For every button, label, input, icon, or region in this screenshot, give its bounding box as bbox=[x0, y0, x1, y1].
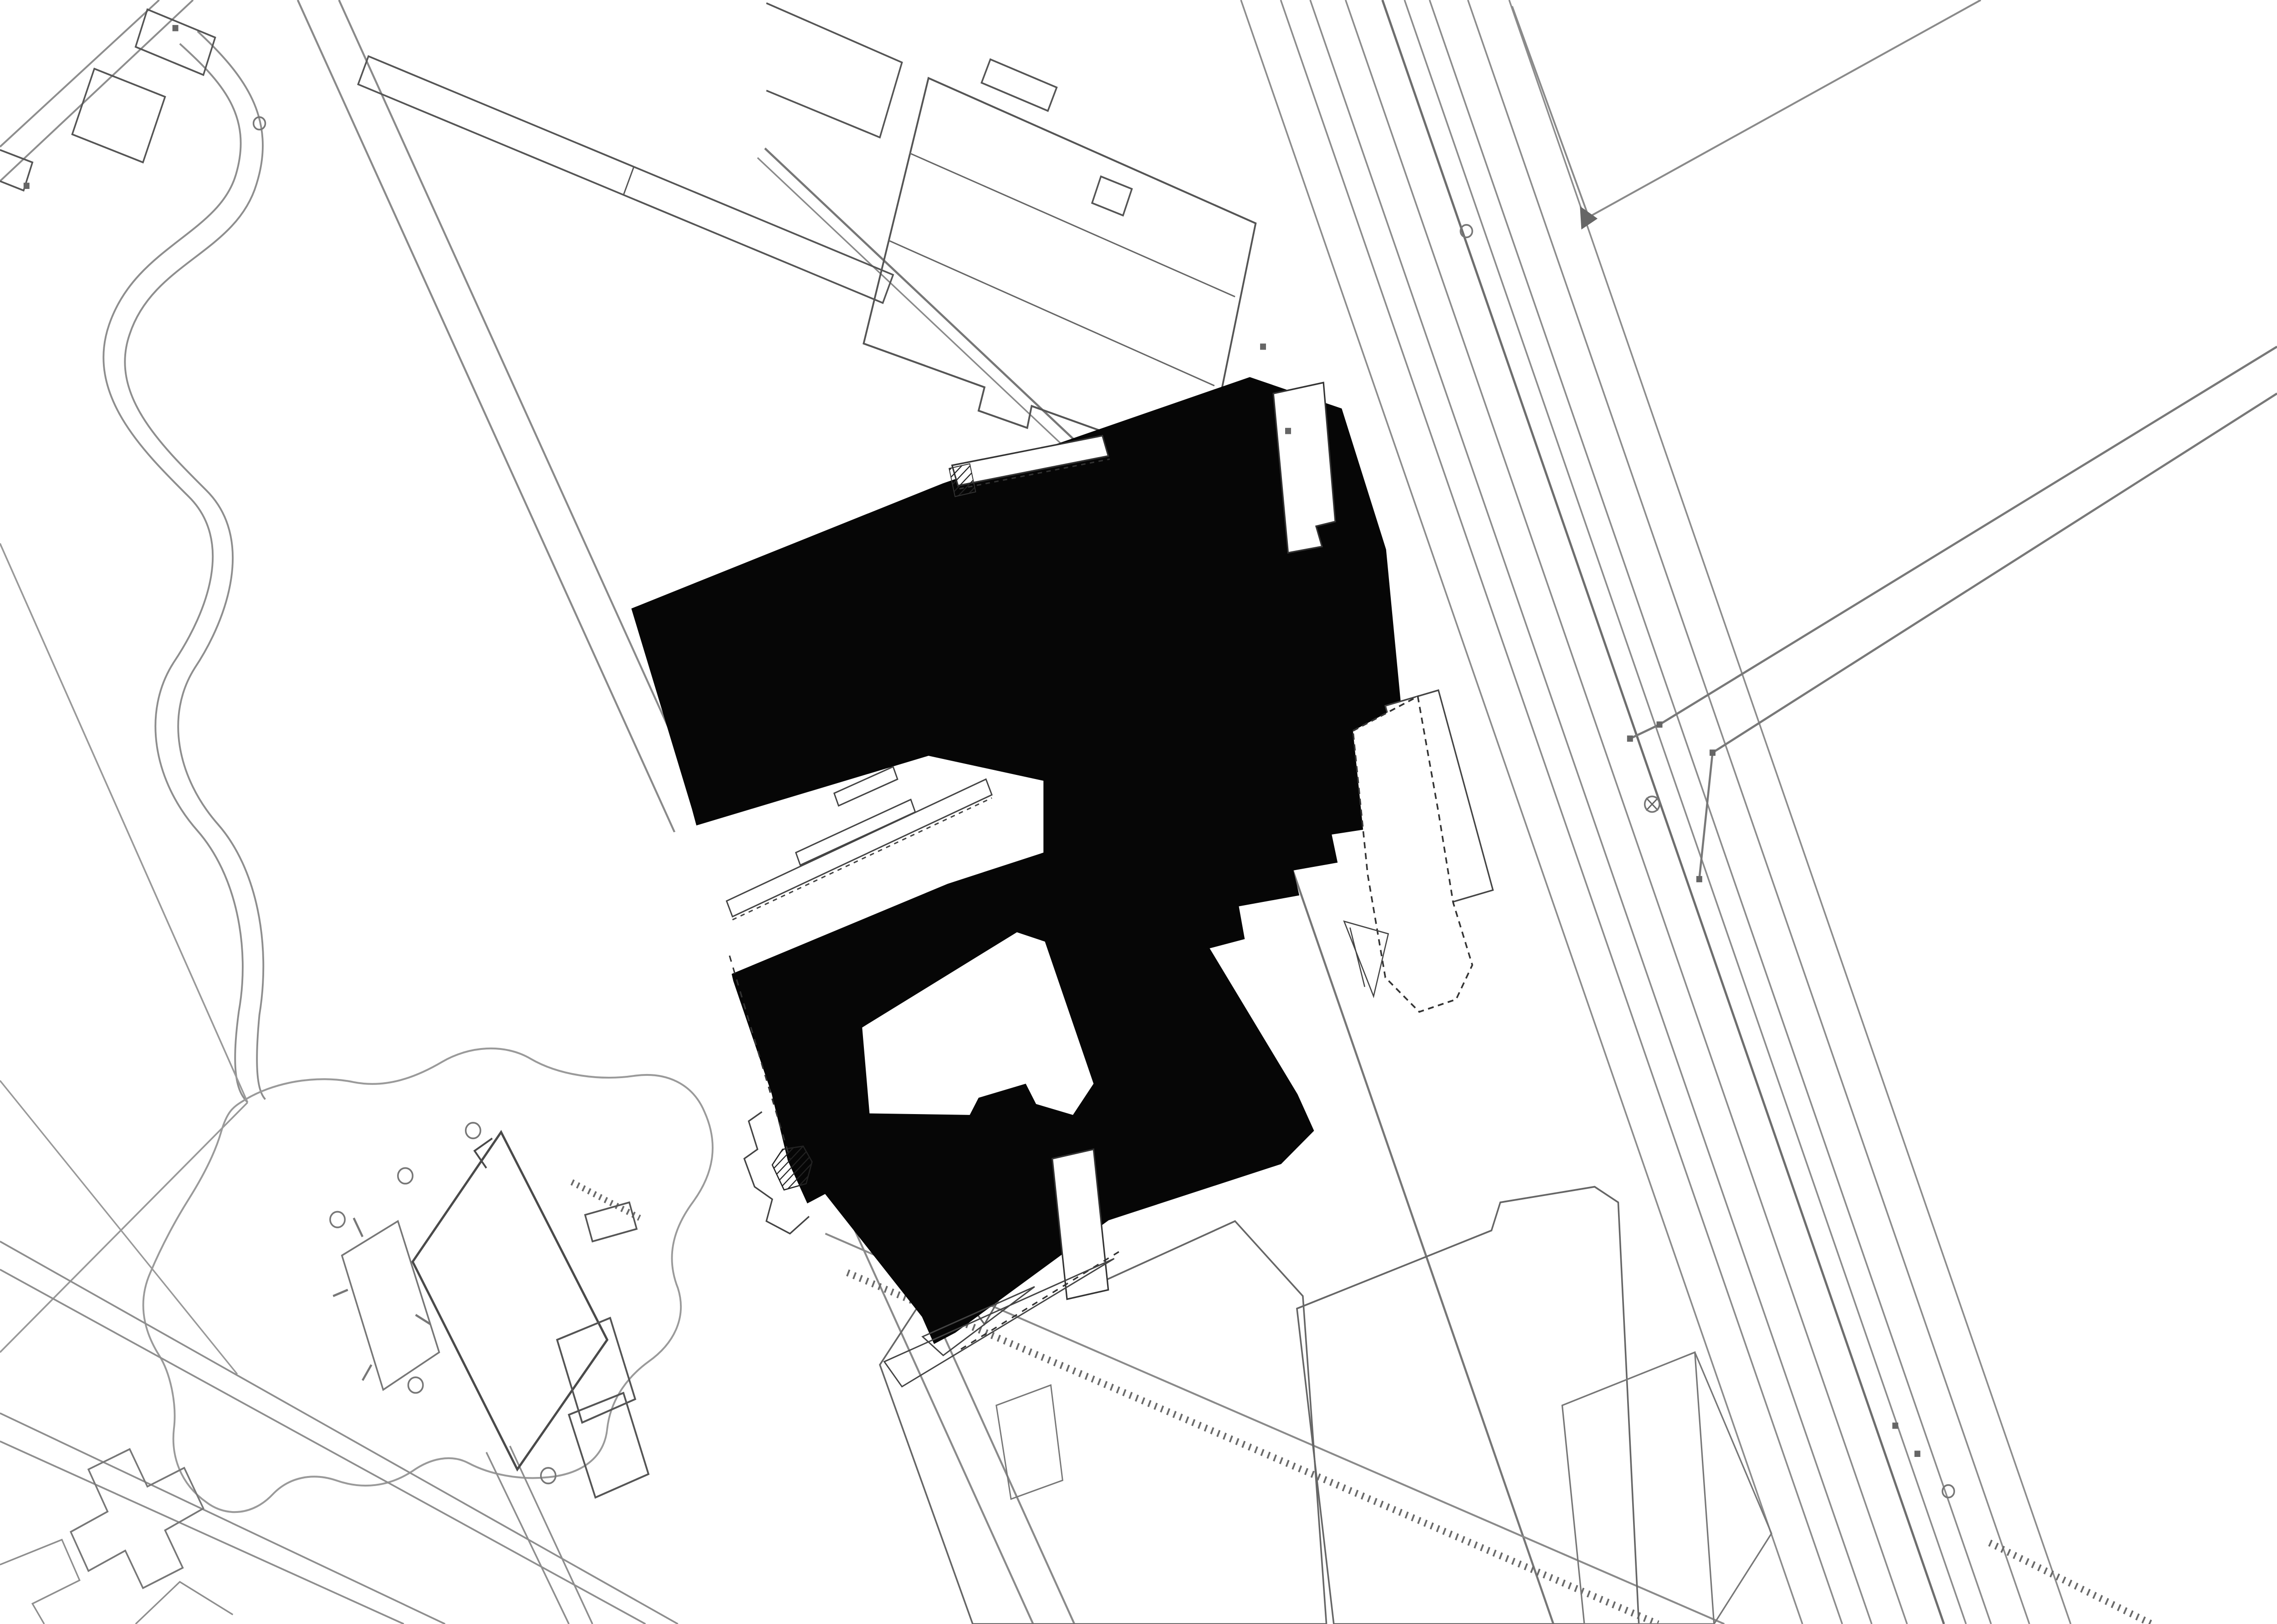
node-marker bbox=[1915, 1451, 1920, 1457]
node-marker bbox=[1627, 735, 1633, 742]
node-marker bbox=[1285, 428, 1291, 434]
node-marker bbox=[1657, 722, 1663, 728]
site-plan-canvas bbox=[0, 0, 2277, 1624]
node-marker bbox=[24, 183, 30, 189]
node-marker bbox=[173, 25, 179, 31]
node-marker bbox=[1696, 876, 1702, 882]
node-marker bbox=[1260, 344, 1266, 350]
node-marker bbox=[1710, 749, 1715, 756]
node-marker bbox=[1892, 1423, 1898, 1429]
site-plan bbox=[0, 0, 2277, 1624]
